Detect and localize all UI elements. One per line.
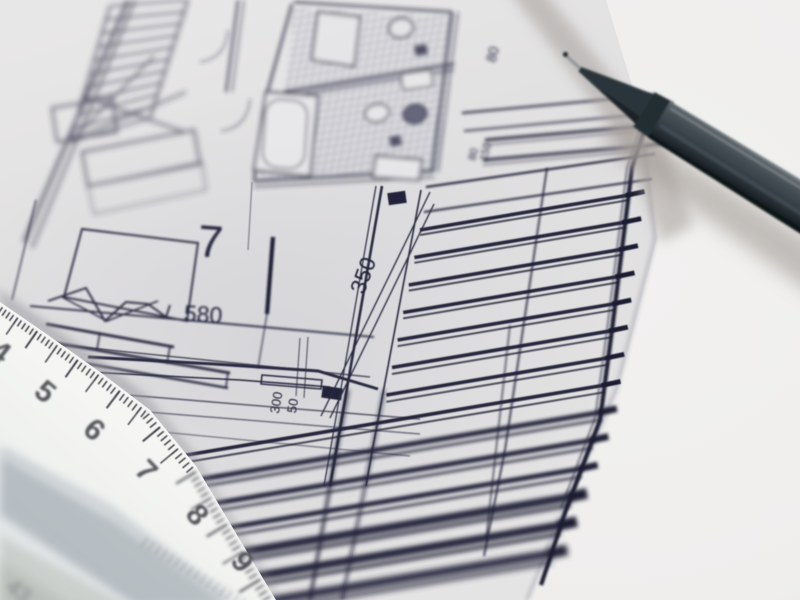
svg-text:580: 580 xyxy=(183,300,223,329)
svg-text:7: 7 xyxy=(196,215,225,268)
svg-text:50: 50 xyxy=(284,397,301,414)
